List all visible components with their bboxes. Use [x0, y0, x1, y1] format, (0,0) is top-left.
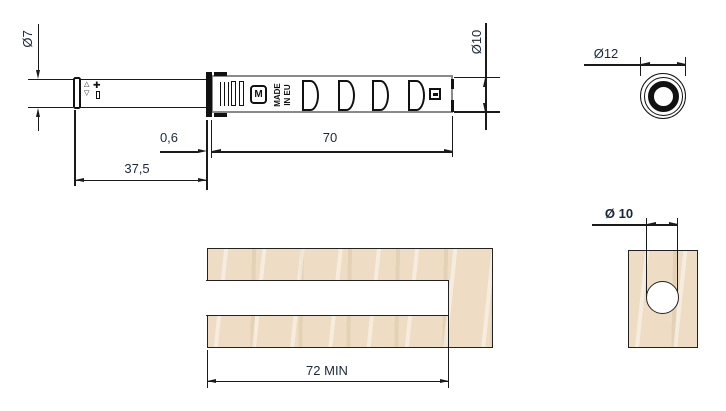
dim-line	[584, 64, 686, 65]
magnet-ring	[648, 81, 679, 112]
dim-line	[212, 151, 453, 152]
dim-line	[38, 24, 39, 71]
triangle-down-icon: ▽	[84, 90, 89, 97]
grill-line	[220, 82, 222, 106]
dim-hole-depth: 72 MIN	[287, 363, 367, 379]
dim-arrow	[483, 78, 487, 87]
dim-arrow	[36, 70, 40, 79]
technical-drawing-canvas: △ ▽ ✚ M MADE IN EU	[0, 0, 726, 411]
bar-adjust-icon	[96, 91, 101, 99]
dim-arrow	[444, 149, 453, 153]
grill-line	[224, 82, 226, 106]
ext-line	[685, 57, 686, 76]
rib-top	[214, 72, 227, 76]
ext-line	[677, 218, 678, 298]
end-square-detail	[429, 88, 441, 100]
dim-line	[485, 23, 486, 130]
end-tick-top	[451, 79, 455, 89]
dim-arrow	[75, 178, 84, 182]
ext-line	[454, 111, 500, 112]
dim-arrow	[212, 149, 221, 153]
ext-line	[640, 57, 641, 76]
dim-line	[207, 381, 449, 382]
dim-line	[592, 224, 678, 225]
drill-slot	[206, 280, 450, 316]
ext-line	[452, 116, 453, 157]
ext-line	[74, 110, 75, 186]
d-cutout	[338, 80, 355, 111]
grill-line	[228, 82, 230, 106]
brand-logo: M	[250, 85, 267, 104]
dim-arrow	[641, 62, 650, 66]
dim-line	[75, 180, 207, 181]
dim-arrow	[483, 103, 487, 112]
vent-slot	[239, 81, 244, 106]
ext-line	[448, 315, 449, 388]
dim-arrow	[440, 379, 449, 383]
ext-line	[28, 79, 73, 80]
drill-hole	[646, 281, 679, 314]
dim-plunger-diameter: Ø7	[20, 24, 36, 54]
end-square-inner	[433, 93, 438, 97]
rib-bottom	[214, 113, 227, 117]
d-cutout	[408, 80, 425, 111]
dim-line	[38, 117, 39, 131]
dim-arrow	[207, 379, 216, 383]
dim-arrow	[36, 108, 40, 117]
dim-arrow	[647, 222, 656, 226]
made-in-eu-label: MADE IN EU	[273, 77, 293, 113]
plus-adjust-icon: ✚	[93, 81, 101, 90]
ext-line	[646, 218, 647, 298]
brand-logo-letter: M	[254, 89, 262, 100]
dim-flange-thickness: 0,6	[144, 130, 194, 146]
d-cutout	[372, 80, 389, 111]
dim-plunger-length: 37,5	[107, 161, 167, 177]
end-tick-bottom	[451, 100, 455, 112]
dim-arrow	[198, 178, 207, 182]
dim-arrow	[198, 149, 207, 153]
flange	[206, 72, 212, 117]
ext-line	[454, 77, 500, 78]
d-cutout	[302, 80, 319, 111]
dim-hole-diameter: Ø 10	[594, 206, 644, 222]
dim-arrow	[669, 222, 678, 226]
triangle-up-icon: △	[84, 81, 89, 88]
dim-body-length: 70	[310, 130, 350, 146]
dim-face-diameter: Ø12	[586, 46, 626, 62]
plunger-tip-cap	[73, 77, 81, 109]
dim-arrow	[677, 62, 686, 66]
dim-body-diameter: Ø10	[469, 27, 485, 57]
vent-slot	[231, 81, 236, 106]
dim-line	[160, 151, 198, 152]
